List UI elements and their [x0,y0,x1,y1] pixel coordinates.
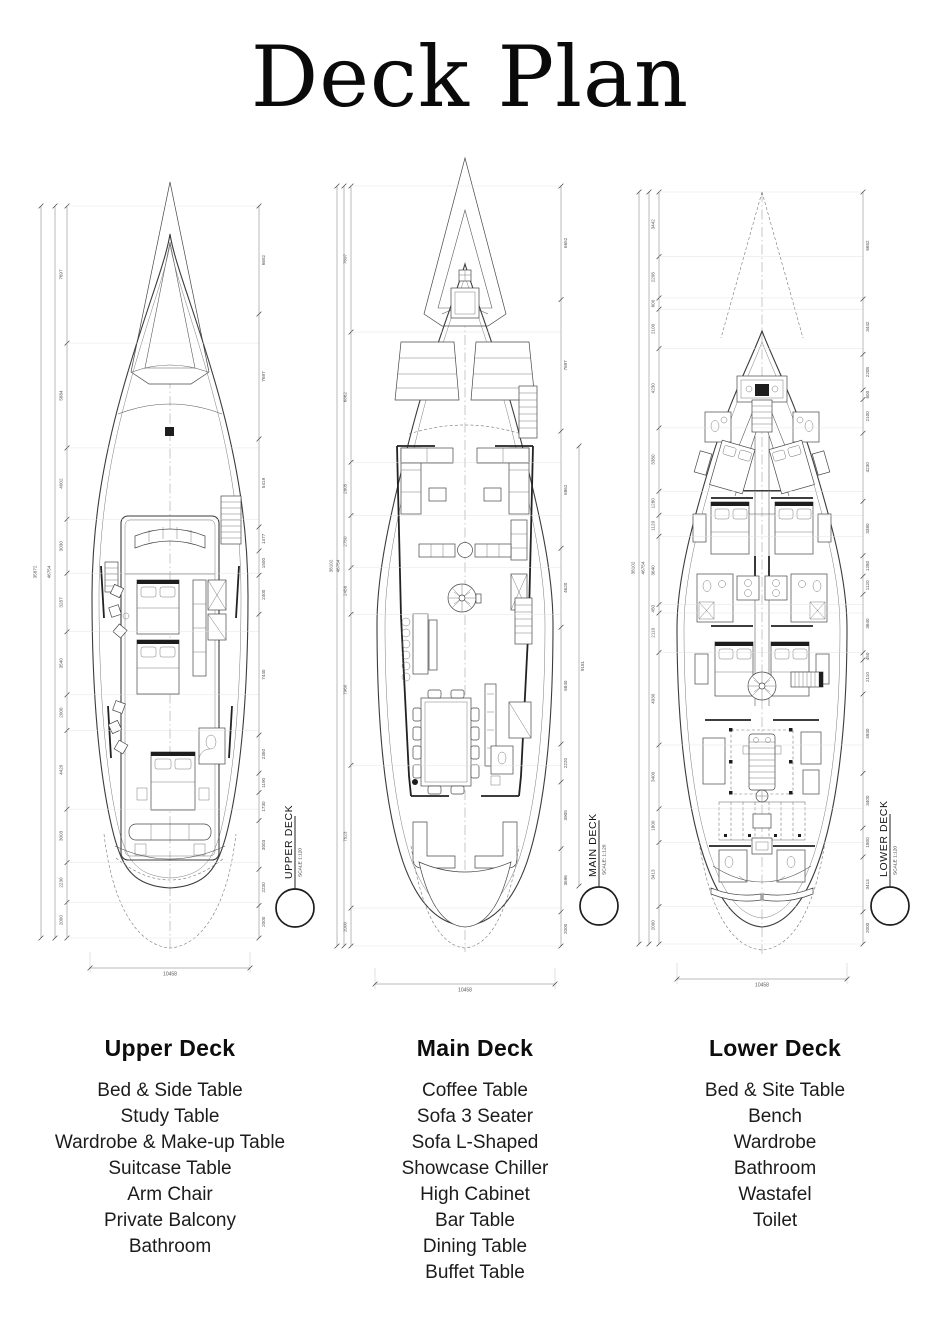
svg-text:6652: 6652 [563,237,568,248]
generator [803,770,819,794]
deck-label: UPPER DECKSCALE 1:120 [283,805,304,889]
svg-text:38102: 38102 [631,561,636,574]
stern-bench [711,888,761,901]
bed [151,752,195,810]
svg-text:2456: 2456 [343,585,348,596]
stairs-icon [519,386,537,438]
svg-text:46754: 46754 [47,565,52,578]
svg-text:1120: 1120 [651,520,656,530]
main-deck-drawing: 7697686228052750245679607523200066527697… [325,146,625,1001]
svg-text:2000: 2000 [59,915,64,926]
feature-item: Arm Chair [15,1182,325,1208]
svg-text:450: 450 [865,652,870,660]
deck-feature-lists: Upper Deck Bed & Side TableStudy TableWa… [0,1035,940,1286]
svg-text:2230: 2230 [59,877,64,888]
bathroom [199,728,225,764]
svg-text:4620: 4620 [563,582,568,593]
svg-text:2208: 2208 [651,272,656,283]
svg-text:3442: 3442 [865,321,870,332]
svg-text:2110: 2110 [865,672,870,682]
generator [801,732,821,764]
svg-text:46754: 46754 [336,559,341,572]
svg-text:4230: 4230 [651,383,656,394]
svg-text:SCALE: 1:120: SCALE: 1:120 [602,844,608,875]
spiral-staircase [448,584,481,612]
feature-item: Study Table [15,1104,325,1130]
svg-text:3442: 3442 [651,219,656,230]
svg-text:LOWER DECK: LOWER DECK [878,800,890,877]
svg-text:3640: 3640 [865,618,870,629]
engine [743,734,781,802]
svg-text:10458: 10458 [458,988,472,994]
svg-text:2000: 2000 [59,707,64,718]
wardrobe [193,580,206,676]
svg-text:7440: 7440 [261,669,266,680]
bed [137,640,179,694]
feature-item: Wastafel [625,1182,925,1208]
sofa-3-seater [475,544,511,557]
deck-plan-poster: Deck Plan [0,0,940,1336]
lower-deck-features: Lower Deck Bed & Site TableBenchWardrobe… [625,1035,925,1286]
svg-text:3540: 3540 [59,658,64,669]
svg-text:46754: 46754 [641,561,646,574]
page-title: Deck Plan [0,0,940,124]
bar-table [402,614,437,681]
svg-text:3413: 3413 [865,879,870,890]
aft-bench [129,824,211,855]
svg-text:600: 600 [865,390,870,398]
feature-item: Dining Table [325,1234,625,1260]
svg-text:6862: 6862 [343,392,348,403]
svg-text:4002: 4002 [59,478,64,489]
svg-text:3640: 3640 [651,565,656,576]
svg-text:5419: 5419 [261,477,266,488]
shower [208,580,226,640]
deck-label-circle [580,887,618,925]
svg-text:1477: 1477 [261,533,266,544]
svg-text:3413: 3413 [651,869,656,880]
svg-text:4930: 4930 [651,693,656,704]
upper-deck-heading: Upper Deck [15,1035,325,1062]
main-deck-heading: Main Deck [325,1035,625,1062]
svg-text:3380: 3380 [865,523,870,534]
svg-text:10458: 10458 [755,983,769,989]
feature-item: High Cabinet [325,1182,625,1208]
svg-text:3696: 3696 [563,875,568,886]
deck-drawings: 7697588440023030328735402000442030032230… [0,146,940,1001]
svg-text:10458: 10458 [163,972,177,978]
svg-text:2750: 2750 [343,536,348,547]
svg-text:1280: 1280 [651,498,656,509]
bed [715,642,753,696]
stern-bench [763,888,813,901]
svg-text:3287: 3287 [59,597,64,608]
dining-table [413,690,479,794]
arm-chairs [108,584,129,753]
svg-text:1280: 1280 [865,561,870,572]
svg-text:2208: 2208 [865,367,870,378]
svg-text:1190: 1190 [261,778,266,788]
svg-text:3030: 3030 [59,541,64,552]
svg-text:5884: 5884 [59,390,64,401]
upper-deck-plan-svg: 7697588440023030328735402000442030032230… [15,146,325,1001]
svg-text:UPPER DECK: UPPER DECK [283,805,295,879]
svg-text:6862: 6862 [563,484,568,495]
svg-text:3003: 3003 [59,830,64,841]
bed [771,642,809,696]
svg-text:3400: 3400 [865,795,870,806]
svg-text:1800: 1800 [865,837,870,848]
svg-text:1500: 1500 [261,558,266,569]
svg-text:3400: 3400 [651,771,656,782]
upper-deck-features: Upper Deck Bed & Side TableStudy TableWa… [15,1035,325,1286]
bowsprit [131,182,209,384]
svg-text:35872: 35872 [33,565,38,578]
feature-item: Wardrobe [625,1130,925,1156]
svg-text:450: 450 [651,605,656,613]
feature-item: Bed & Side Table [15,1078,325,1104]
upper-deck-drawing: 7697588440023030328735402000442030032230… [15,146,325,1001]
svg-text:2000: 2000 [343,922,348,933]
svg-text:2230: 2230 [261,882,266,893]
svg-text:6840: 6840 [563,680,568,691]
stairs-icon [515,598,532,644]
bed [775,502,813,554]
svg-text:SCALE 1:120: SCALE 1:120 [893,846,899,875]
svg-text:1800: 1800 [651,820,656,831]
svg-text:2100: 2100 [865,411,870,422]
svg-text:7697: 7697 [563,360,568,371]
svg-text:3380: 3380 [651,454,656,465]
bed [769,440,814,494]
bed [137,580,179,634]
svg-text:2805: 2805 [343,483,348,494]
coffee-table [429,488,446,501]
svg-text:4230: 4230 [865,462,870,473]
spiral-staircase [748,672,776,700]
stairs-icon [105,496,241,592]
svg-text:4420: 4420 [59,764,64,775]
lower-deck-drawing: 3442220860021004230338012801120364045021… [625,146,925,1001]
coffee-table [484,488,501,501]
svg-text:3905: 3905 [563,810,568,821]
svg-text:MAIN DECK: MAIN DECK [587,813,599,877]
svg-text:2350: 2350 [261,749,266,760]
feature-item: Sofa 3 Seater [325,1104,625,1130]
feature-item: Bar Table [325,1208,625,1234]
feature-item: Private Balcony [15,1208,325,1234]
feature-item: Coffee Table [325,1078,625,1104]
svg-text:38102: 38102 [329,559,334,572]
svg-text:6652: 6652 [261,255,266,266]
svg-text:7697: 7697 [59,269,64,280]
feature-item: Bed & Site Table [625,1078,925,1104]
svg-text:7697: 7697 [343,254,348,265]
svg-text:2100: 2100 [651,323,656,334]
svg-text:6652: 6652 [865,240,870,251]
svg-text:2400: 2400 [261,589,266,600]
lower-deck-heading: Lower Deck [625,1035,925,1062]
svg-text:7697: 7697 [261,371,266,382]
svg-text:7960: 7960 [343,684,348,695]
bed [710,440,755,494]
feature-item: Suitcase Table [15,1156,325,1182]
svg-text:2000: 2000 [865,922,870,933]
svg-text:2000: 2000 [563,923,568,934]
svg-text:1120: 1120 [865,580,870,590]
stairs-icon [791,672,823,687]
feature-item: Bathroom [15,1234,325,1260]
feature-item: Showcase Chiller [325,1156,625,1182]
svg-text:4930: 4930 [865,728,870,739]
deck-label: MAIN DECKSCALE: 1:120 [587,813,608,887]
feature-item: Bench [625,1104,925,1130]
feature-item: Buffet Table [325,1260,625,1286]
svg-text:600: 600 [651,299,656,307]
svg-text:2000: 2000 [651,920,656,931]
bed [711,502,749,554]
svg-text:7523: 7523 [343,831,348,842]
svg-text:1730: 1730 [261,801,266,812]
showcase-chiller [511,520,527,560]
svg-text:2000: 2000 [261,916,266,927]
svg-text:2220: 2220 [563,758,568,769]
lower-deck-plan-svg: 3442220860021004230338012801120364045021… [625,146,925,1001]
feature-item: Toilet [625,1208,925,1234]
stairs-icon [752,400,772,432]
feature-item: Sofa L-Shaped [325,1130,625,1156]
svg-text:2110: 2110 [651,627,656,637]
svg-text:9181: 9181 [580,661,585,672]
sofa-3-seater [419,544,455,557]
swim-platform [419,862,511,927]
main-deck-plan-svg: 7697686228052750245679607523200066527697… [325,146,625,1001]
svg-text:3003: 3003 [261,839,266,850]
feature-item: Wardrobe & Make-up Table [15,1130,325,1156]
main-deck-features: Main Deck Coffee TableSofa 3 SeaterSofa … [325,1035,625,1286]
deck-label-circle [276,889,314,927]
feature-item: Bathroom [625,1156,925,1182]
deck-label: LOWER DECKSCALE 1:120 [878,800,899,887]
svg-text:SCALE 1:120: SCALE 1:120 [298,848,304,877]
deck-label-circle [871,887,909,925]
